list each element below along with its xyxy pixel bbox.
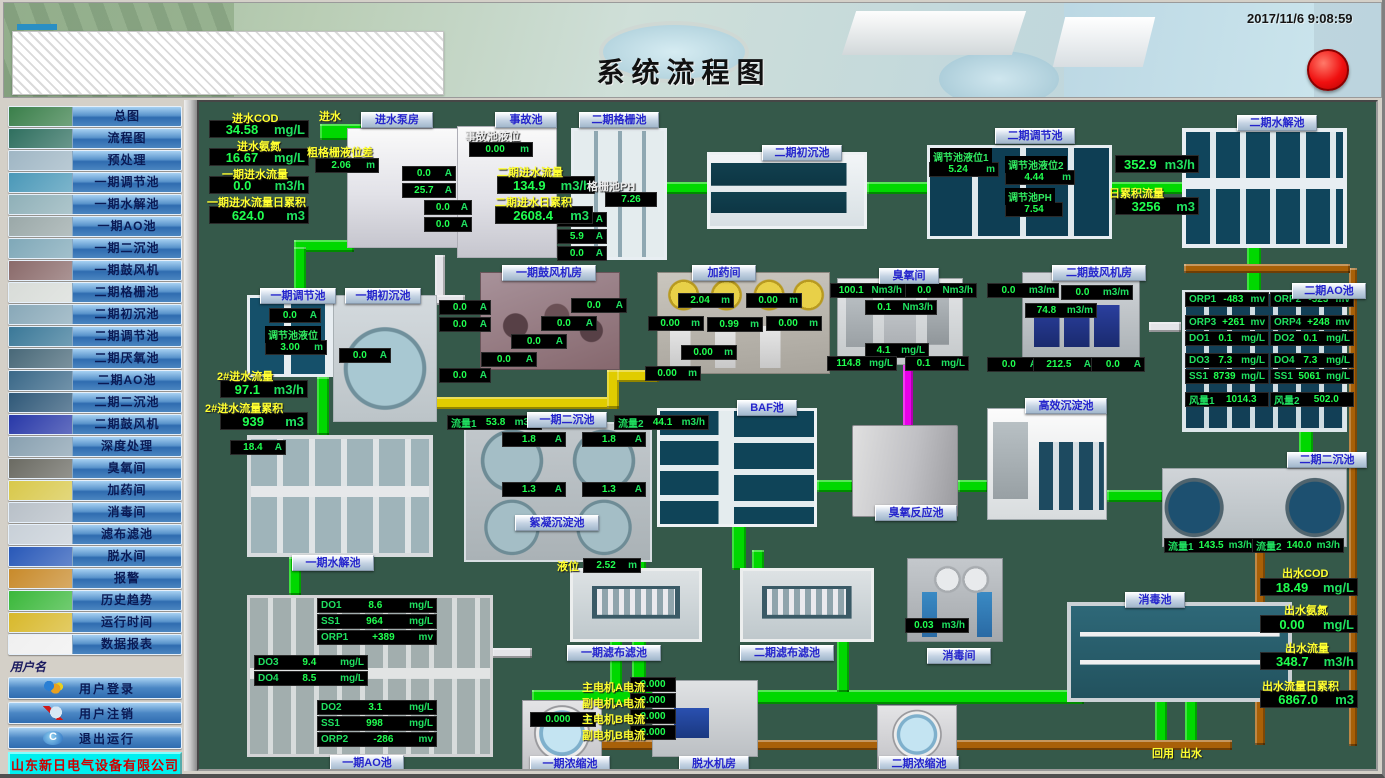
yellow-label: 进水 — [319, 108, 341, 124]
value-box: SS15061mg/L — [1270, 369, 1354, 384]
dewatering-room-button[interactable]: 脱水机房 — [679, 756, 749, 771]
yellow-label: 一期进水流量日累积 — [207, 194, 306, 210]
value-box-unit: Nm3/h — [871, 285, 902, 296]
value-box-value: -483 — [1219, 294, 1247, 305]
sidebar-item-13[interactable]: 二期AO池 — [8, 370, 182, 391]
value-box: ORP1-483mv — [1185, 292, 1269, 307]
sidebar-item-thumbnail — [9, 327, 73, 346]
value-box-unit: A — [555, 434, 562, 445]
value-box-value: 0.0 — [343, 350, 377, 361]
value-box: 0.1mg/L — [905, 356, 969, 371]
value-box-label: DO1 — [1189, 333, 1210, 344]
sidebar-item-11[interactable]: 二期调节池 — [8, 326, 182, 347]
value-box-value: 114.8 — [831, 358, 866, 369]
value-box: 0.00m — [766, 316, 822, 331]
value-box: 0.0A — [339, 348, 391, 363]
sidebar-item-label: 一期二沉池 — [73, 239, 181, 258]
value-box: ORP4+248mv — [1270, 315, 1354, 330]
sidebar-item-thumbnail — [9, 349, 73, 368]
value-box-value: 4.44 — [1009, 172, 1059, 183]
value-box-value: 0.0 — [515, 336, 553, 347]
value-box-unit: m3/m — [1067, 305, 1093, 316]
value-box-label: DO1 — [321, 600, 342, 611]
value-box-unit: mg/L — [274, 122, 305, 137]
yellow-label: 副电机A电流 — [582, 695, 645, 711]
value-box-unit: A — [596, 248, 603, 259]
value-box-unit: mg/L — [340, 673, 364, 684]
ozone-reaction-tank-graphic — [852, 425, 958, 517]
value-box-unit: A — [461, 219, 468, 230]
sidebar-item-25[interactable]: 数据报表 — [8, 634, 182, 655]
yellow-label: 2#进水流量累积 — [205, 400, 283, 416]
sidebar-item-label: 总图 — [73, 107, 181, 126]
value-box-label: ORP1 — [1189, 294, 1216, 305]
value-box-unit: mg/L — [409, 600, 433, 611]
sidebar-divider — [184, 100, 197, 771]
phase1-secondary-tank-button[interactable]: 一期二沉池 — [527, 412, 607, 428]
value-box: DO48.5mg/L — [254, 671, 368, 686]
value-box-unit: m — [691, 318, 700, 329]
value-box-unit: A — [480, 370, 487, 381]
value-box-value: 18.4 — [234, 442, 272, 453]
ozone-room-button[interactable]: 臭氧间 — [879, 268, 939, 284]
user-logout-icon — [43, 706, 63, 720]
value-box-value: 9.4 — [282, 657, 338, 668]
value-box: 114.8mg/L — [827, 356, 897, 371]
value-box-label: 流量2 — [618, 415, 644, 430]
green-label: 调节池PH — [1005, 188, 1055, 205]
value-box-value: 0.00 — [770, 318, 806, 329]
pipe — [752, 550, 764, 570]
aerial-building-decoration — [1053, 17, 1155, 67]
value-box-unit: m3 — [285, 414, 304, 429]
value-box-unit: mv — [1336, 317, 1350, 328]
phase1-blower-room-button[interactable]: 一期鼓风机房 — [502, 265, 596, 281]
sidebar-item-label: 流程图 — [73, 129, 181, 148]
sidebar-item-6[interactable]: 一期AO池 — [8, 216, 182, 237]
sidebar-item-thumbnail — [9, 217, 73, 236]
value-box-unit: mg/L — [340, 657, 364, 668]
value-box-value: 0.0 — [991, 359, 1027, 370]
phase2-hydrolysis-tank-button[interactable]: 二期水解池 — [1237, 115, 1317, 131]
value-box-unit: m — [986, 164, 995, 175]
value-box: 0.0A — [439, 317, 491, 332]
value-box-unit: A — [461, 202, 468, 213]
sidebar-item-thumbnail — [9, 503, 73, 522]
value-box-value: 2.04 — [682, 295, 718, 306]
sidebar-item-17[interactable]: 臭氧间 — [8, 458, 182, 479]
header-banner: 系统流程图 2017/11/6 9:08:59 — [3, 2, 1382, 98]
yellow-label: 主电机A电流 — [582, 679, 645, 695]
value-box-unit: A — [480, 302, 487, 313]
value-box: 0.0A — [424, 200, 472, 215]
green-label: 调节池液位 — [265, 326, 321, 343]
yellow-label: 出水 — [1180, 745, 1202, 761]
value-box-value: 0.1 — [1213, 333, 1239, 344]
sidebar-item-label: 一期水解池 — [73, 195, 181, 214]
phase1-cloth-filter-button[interactable]: 一期滤布滤池 — [567, 645, 661, 661]
value-box-value: 2.06 — [319, 160, 363, 171]
disinfection-room-button[interactable]: 消毒间 — [927, 648, 991, 664]
sidebar-item-thumbnail — [9, 437, 73, 456]
value-box-unit: m — [750, 319, 759, 330]
value-box-label: DO3 — [1189, 355, 1210, 366]
sidebar-item-thumbnail — [9, 459, 73, 478]
pipe — [665, 182, 711, 194]
yellow-label: 2#进水流量 — [217, 368, 273, 384]
value-box: 0.00m — [681, 345, 737, 360]
value-box-label: ORP3 — [1189, 317, 1216, 328]
value-box-value: 1.8 — [506, 434, 552, 445]
sidebar-item-label: 二期二沉池 — [73, 393, 181, 412]
sidebar-item-21[interactable]: 脱水间 — [8, 546, 182, 567]
pipe — [958, 480, 988, 492]
value-box: 0.0A — [571, 298, 627, 313]
pipe — [732, 525, 746, 570]
value-box: 0.0A — [1091, 357, 1145, 372]
value-box-unit: A — [1134, 359, 1141, 370]
sidebar-item-4[interactable]: 一期调节池 — [8, 172, 182, 193]
sidebar-item-label: 一期鼓风机 — [73, 261, 181, 280]
sidebar-item-23[interactable]: 历史趋势 — [8, 590, 182, 611]
value-box: DO47.3mg/L — [1270, 353, 1354, 368]
value-box: 74.8m3/m — [1025, 303, 1097, 318]
value-box-value: 0.99 — [711, 319, 747, 330]
exit-runtime-icon — [43, 731, 63, 745]
value-box-value: 143.5 — [1197, 540, 1226, 551]
sidebar-item-10[interactable]: 二期初沉池 — [8, 304, 182, 325]
sidebar-item-2[interactable]: 流程图 — [8, 128, 182, 149]
value-box-value: 352.9 — [1119, 157, 1162, 172]
value-box-unit: mg/L — [1326, 333, 1350, 344]
value-box-value: 0.0 — [428, 202, 458, 213]
aerial-building-decoration — [842, 11, 1026, 55]
value-box: 0.0A — [511, 334, 567, 349]
value-box: 0.0A — [439, 300, 491, 315]
value-box: 352.9m3/h — [1115, 155, 1199, 173]
phase1-hydrolysis-tank-button[interactable]: 一期水解池 — [292, 555, 374, 571]
value-box-label: ORP2 — [321, 734, 348, 745]
value-box-unit: m — [314, 342, 323, 353]
company-banner: 山东新日电气设备有限公司 — [8, 752, 182, 778]
phase2-screen-tank-button[interactable]: 二期格栅池 — [579, 112, 659, 128]
value-box: DO37.3mg/L — [1185, 353, 1269, 368]
phase1-regulating-tank-button[interactable]: 一期调节池 — [260, 288, 336, 304]
sidebar-item-22[interactable]: 报警 — [8, 568, 182, 589]
value-box-unit: A — [555, 484, 562, 495]
sidebar-item-5[interactable]: 一期水解池 — [8, 194, 182, 215]
value-box-unit: Nm3/h — [902, 302, 933, 313]
username-label: 用户名 — [10, 658, 180, 675]
sidebar-item-14[interactable]: 二期二沉池 — [8, 392, 182, 413]
value-box-value: 0.0 — [443, 302, 477, 313]
sidebar-item-thumbnail — [9, 173, 73, 192]
value-box-value: 0.0 — [443, 319, 477, 330]
value-box-unit: m3 — [570, 208, 589, 223]
value-box-unit: m3/m — [1103, 287, 1129, 298]
exit-runtime-button[interactable]: 退出运行 — [8, 727, 182, 749]
sidebar-item-label: 二期格栅池 — [73, 283, 181, 302]
value-box-label: ORP4 — [1274, 317, 1301, 328]
sidebar-item-label: 脱水间 — [73, 547, 181, 566]
value-box-unit: m — [721, 295, 730, 306]
value-box: 0.0A — [439, 368, 491, 383]
sidebar-item-15[interactable]: 二期鼓风机 — [8, 414, 182, 435]
value-box: ORP1+389mv — [317, 630, 437, 645]
sidebar-item-thumbnail — [9, 613, 73, 632]
ozone-reaction-tank-button[interactable]: 臭氧反应池 — [875, 505, 957, 521]
sidebar-item-label: 一期AO池 — [73, 217, 181, 236]
page-title: 系统流程图 — [544, 51, 824, 91]
value-box-unit: A — [1084, 359, 1091, 370]
sidebar-item-19[interactable]: 消毒间 — [8, 502, 182, 523]
value-box-value: 74.8 — [1029, 305, 1064, 316]
value-box-value: 7.26 — [609, 194, 653, 205]
value-box-value: 0.1 — [869, 302, 899, 313]
pipe — [867, 182, 929, 194]
value-box-value: 0.0 — [909, 285, 939, 296]
value-box-unit: m — [366, 160, 375, 171]
value-box: 0.0A — [557, 246, 607, 261]
sidebar-item-label: 滤布滤池 — [73, 525, 181, 544]
white-label: 事故池液位 — [465, 128, 520, 144]
value-box-value: 44.1 — [647, 417, 679, 428]
value-box-unit: A — [616, 300, 623, 311]
value-box: 0.99m — [707, 317, 763, 332]
sidebar-item-16[interactable]: 深度处理 — [8, 436, 182, 457]
value-box-value: 8.5 — [282, 673, 338, 684]
flocculation-tank-button[interactable]: 絮凝沉淀池 — [515, 515, 599, 531]
yellow-label: 粗格栅液位差 — [307, 144, 373, 160]
value-box-value: 8.6 — [345, 600, 407, 611]
value-box-value: +261 — [1219, 317, 1247, 328]
value-box-value: 998 — [343, 718, 406, 729]
value-box-unit: m — [520, 144, 529, 155]
value-box-value: 0.0 — [1065, 287, 1100, 298]
value-box-unit: A — [596, 231, 603, 242]
value-box-value: 0.0 — [485, 354, 523, 365]
pipe — [317, 377, 329, 435]
phase1-cloth-filter-graphic — [570, 568, 702, 642]
sidebar-item-thumbnail — [9, 283, 73, 302]
value-box: 1.3A — [582, 482, 646, 497]
value-box: DO20.1mg/L — [1270, 331, 1354, 346]
value-box-unit: A — [480, 319, 487, 330]
disinfection-tank-button[interactable]: 消毒池 — [1125, 592, 1185, 608]
sidebar-item-label: 二期AO池 — [73, 371, 181, 390]
aerial-tank-decoration — [939, 51, 1059, 98]
yellow-label: 一期进水流量 — [222, 166, 288, 182]
sidebar-item-thumbnail — [9, 129, 73, 148]
phase2-ao-tank-button[interactable]: 二期AO池 — [1292, 283, 1366, 299]
user-login-button[interactable]: 用户登录 — [8, 677, 182, 699]
phase2-primary-tank-button[interactable]: 二期初沉池 — [762, 145, 842, 161]
value-box-value: 0.00 — [652, 318, 688, 329]
value-box-unit: mg/L — [941, 358, 965, 369]
value-box: 25.7A — [402, 183, 456, 198]
pipe — [817, 480, 853, 492]
value-box-label: DO4 — [258, 673, 279, 684]
value-box-unit: mg/L — [1326, 355, 1350, 366]
pipe — [1184, 264, 1350, 273]
sidebar-item-7[interactable]: 一期二沉池 — [8, 238, 182, 259]
value-box-label: 流量1 — [1168, 538, 1194, 553]
value-box: SS1964mg/L — [317, 614, 437, 629]
yellow-label: 出水COD — [1282, 565, 1328, 581]
value-box-unit: m3/h — [274, 382, 304, 397]
value-box-label: SS1 — [1274, 371, 1293, 382]
value-box-label: DO3 — [258, 657, 279, 668]
phase2-regulating-tank-button[interactable]: 二期调节池 — [995, 128, 1075, 144]
value-box-unit: mv — [1251, 317, 1265, 328]
value-box-unit: A — [556, 336, 563, 347]
value-box-label: 流量1 — [451, 415, 477, 430]
value-box-value: 0.0 — [406, 168, 442, 179]
yellow-label: 出水流量 — [1285, 640, 1329, 656]
accident-tank-button[interactable]: 事故池 — [495, 112, 557, 128]
phase2-blower-room-button[interactable]: 二期鼓风机房 — [1052, 265, 1146, 281]
value-box: DO39.4mg/L — [254, 655, 368, 670]
value-box-label: ORP1 — [321, 632, 348, 643]
value-box-value: 53.8 — [480, 417, 512, 428]
value-box-label: 流量2 — [1256, 538, 1282, 553]
value-box-value: -286 — [351, 734, 415, 745]
value-box: 0.0A — [424, 217, 472, 232]
value-box-unit: mg/L — [409, 616, 433, 627]
high-efficiency-tank-button[interactable]: 高效沉淀池 — [1025, 398, 1107, 414]
value-box-unit: A — [635, 484, 642, 495]
sidebar-item-list: 总图流程图预处理一期调节池一期水解池一期AO池一期二沉池一期鼓风机二期格栅池二期… — [8, 106, 182, 655]
value-box-unit: A — [526, 354, 533, 365]
value-box-value: 1.3 — [586, 484, 632, 495]
value-box-unit: A — [445, 168, 452, 179]
value-box-unit: m — [809, 318, 818, 329]
value-box-value: 5061 — [1296, 371, 1323, 382]
yellow-label: 回用 — [1152, 745, 1174, 761]
value-box-value: 0.00 — [473, 144, 517, 155]
phase1-ao-tank-button[interactable]: 一期AO池 — [330, 755, 404, 771]
sidebar-item-thumbnail — [9, 481, 73, 500]
phase2-secondary-tank-button[interactable]: 二期二沉池 — [1287, 452, 1367, 468]
value-box: 0.0m3/m — [987, 283, 1059, 298]
value-box-label: DO2 — [1274, 333, 1295, 344]
sidebar-item-thumbnail — [9, 195, 73, 214]
value-box-unit: mg/L — [901, 345, 925, 356]
phase2-secondary-tank-graphic — [1162, 468, 1347, 547]
value-box-value: 0.00 — [750, 295, 786, 306]
value-box: 1.3A — [502, 482, 566, 497]
user-logout-button[interactable]: 用户注销 — [8, 702, 182, 724]
value-box: 2.52m — [583, 558, 641, 573]
baf-tank-button[interactable]: BAF池 — [737, 400, 797, 416]
value-box-unit: mg/L — [1323, 617, 1354, 632]
sidebar-item-thumbnail — [9, 261, 73, 280]
value-box-value: 0.1 — [909, 358, 938, 369]
phase2-cloth-filter-button[interactable]: 二期滤布滤池 — [740, 645, 834, 661]
value-box-unit: A — [445, 185, 452, 196]
value-box: 0.00m — [648, 316, 704, 331]
phase1-thickener-button[interactable]: 一期浓缩池 — [530, 756, 610, 771]
alarm-indicator-button[interactable] — [1307, 49, 1349, 91]
sidebar-item-24[interactable]: 运行时间 — [8, 612, 182, 633]
value-box: DO10.1mg/L — [1185, 331, 1269, 346]
value-box-value: 0.0 — [561, 248, 593, 259]
green-label: 调节池液位1 — [930, 148, 992, 165]
hmi-window: 系统流程图 2017/11/6 9:08:59 总图流程图预处理一期调节池一期水… — [0, 0, 1385, 778]
value-box-label: SS1 — [321, 718, 340, 729]
yellow-label: 出水流量日累积 — [1262, 678, 1339, 694]
sidebar-item-8[interactable]: 一期鼓风机 — [8, 260, 182, 281]
pump-house-button[interactable]: 进水泵房 — [361, 112, 433, 128]
sidebar-item-thumbnail — [9, 591, 73, 610]
value-box-value: 0.00 — [1264, 617, 1320, 632]
value-box-value: 100.1 — [834, 285, 868, 296]
value-box-value: 7.3 — [1213, 355, 1239, 366]
sidebar-item-thumbnail — [9, 569, 73, 588]
value-box-value: 4.1 — [869, 345, 898, 356]
user-login-icon — [43, 681, 63, 695]
value-box-unit: mv — [1251, 294, 1265, 305]
value-box: SS1998mg/L — [317, 716, 437, 731]
value-box-unit: mg/L — [1323, 580, 1354, 595]
value-box-value: 140.0 — [1285, 540, 1314, 551]
high-efficiency-tank-graphic — [987, 408, 1107, 520]
phase1-primary-tank-button[interactable]: 一期初沉池 — [345, 288, 421, 304]
dosing-room-button[interactable]: 加药间 — [692, 265, 756, 281]
value-box-unit: A — [380, 350, 387, 361]
value-box-value: 5.24 — [933, 164, 983, 175]
green-label: 调节池液位2 — [1005, 156, 1067, 173]
sidebar-item-3[interactable]: 预处理 — [8, 150, 182, 171]
value-box-value: 0.00 — [649, 368, 685, 379]
redacted-logo-panel — [12, 31, 444, 95]
sidebar-item-label: 二期初沉池 — [73, 305, 181, 324]
value-box-unit: m3/m — [1029, 285, 1055, 296]
value-box: 风量11014.3 — [1185, 392, 1269, 407]
sidebar-item-label: 消毒间 — [73, 503, 181, 522]
value-box-unit: m3/h — [942, 620, 965, 631]
value-box-value: 0.00 — [685, 347, 721, 358]
value-box: DO18.6mg/L — [317, 598, 437, 613]
phase2-cloth-filter-graphic — [740, 568, 874, 642]
value-box: 0.0m3/m — [1061, 285, 1133, 300]
sidebar-item-1[interactable]: 总图 — [8, 106, 182, 127]
value-box-value: 1014.3 — [1218, 394, 1265, 405]
value-box-value: 0.0 — [443, 370, 477, 381]
sidebar-item-18[interactable]: 加药间 — [8, 480, 182, 501]
value-box: 0.00m — [469, 142, 533, 157]
yellow-label: 进水氨氮 — [237, 138, 281, 154]
sidebar-item-label: 二期鼓风机 — [73, 415, 181, 434]
value-box-unit: m — [628, 560, 637, 571]
pipe — [1107, 490, 1163, 502]
value-box-value: 5.9 — [561, 231, 593, 242]
sidebar-item-20[interactable]: 滤布滤池 — [8, 524, 182, 545]
sidebar-item-12[interactable]: 二期厌氧池 — [8, 348, 182, 369]
value-box: 2.06m — [315, 158, 379, 173]
sidebar-item-label: 加药间 — [73, 481, 181, 500]
phase2-hydrolysis-tank-graphic — [1182, 128, 1347, 248]
value-box: 1.8A — [502, 432, 566, 447]
value-box: 流量1143.5m3/h — [1164, 538, 1256, 553]
value-box: ORP3+261mv — [1185, 315, 1269, 330]
value-box-value: 212.5 — [1037, 359, 1081, 370]
value-box-unit: m — [724, 347, 733, 358]
sidebar-item-9[interactable]: 二期格栅池 — [8, 282, 182, 303]
value-box: 7.26 — [605, 192, 657, 207]
sidebar-item-label: 二期厌氧池 — [73, 349, 181, 368]
phase2-thickener-button[interactable]: 二期浓缩池 — [879, 756, 959, 771]
